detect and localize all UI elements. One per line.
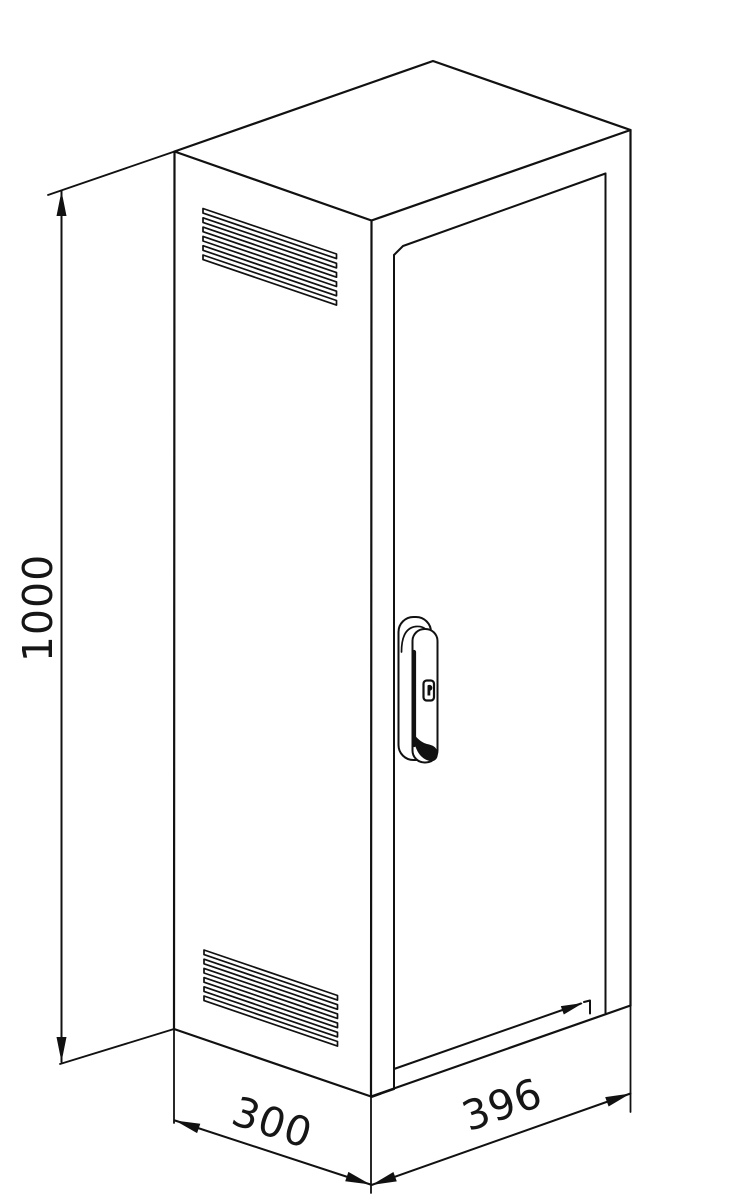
- top-face: [175, 61, 631, 221]
- depth-dimension-label: 396: [456, 1069, 549, 1141]
- height-arrow-top: [57, 191, 67, 216]
- louver-vent-top: [203, 209, 337, 306]
- louver-vent-bottom: [204, 950, 338, 1046]
- door-bottom-edge-arrow: [561, 1003, 583, 1015]
- dimension-height: 1000: [14, 152, 175, 1065]
- width-arrow-right: [345, 1172, 370, 1185]
- depth-arrow-left: [372, 1172, 397, 1185]
- front-corner-edge: [371, 221, 372, 1097]
- width-arrow-left: [175, 1121, 200, 1134]
- door-bottom-left-detail: [372, 1089, 395, 1097]
- height-ext-line-bottom: [60, 1029, 174, 1064]
- enclosure-isometric-drawing: 1000 300 396: [0, 0, 731, 1200]
- height-ext-line-top: [48, 152, 175, 196]
- technical-drawing-canvas: 1000 300 396: [0, 0, 731, 1200]
- height-dimension-label: 1000: [14, 554, 62, 662]
- bottom-edges: [174, 1006, 631, 1097]
- width-dimension-label: 300: [226, 1087, 318, 1158]
- depth-arrow-right: [605, 1094, 630, 1107]
- door-bottom-notch: [584, 1001, 590, 1014]
- cabinet-body: [174, 61, 631, 1097]
- left-edge: [174, 152, 175, 1030]
- door-handle: [399, 617, 438, 763]
- height-arrow-bottom: [57, 1037, 67, 1062]
- door-bottom-edge: [394, 1004, 581, 1070]
- door-top-edge: [394, 174, 606, 256]
- dimension-width: 300: [174, 1029, 371, 1193]
